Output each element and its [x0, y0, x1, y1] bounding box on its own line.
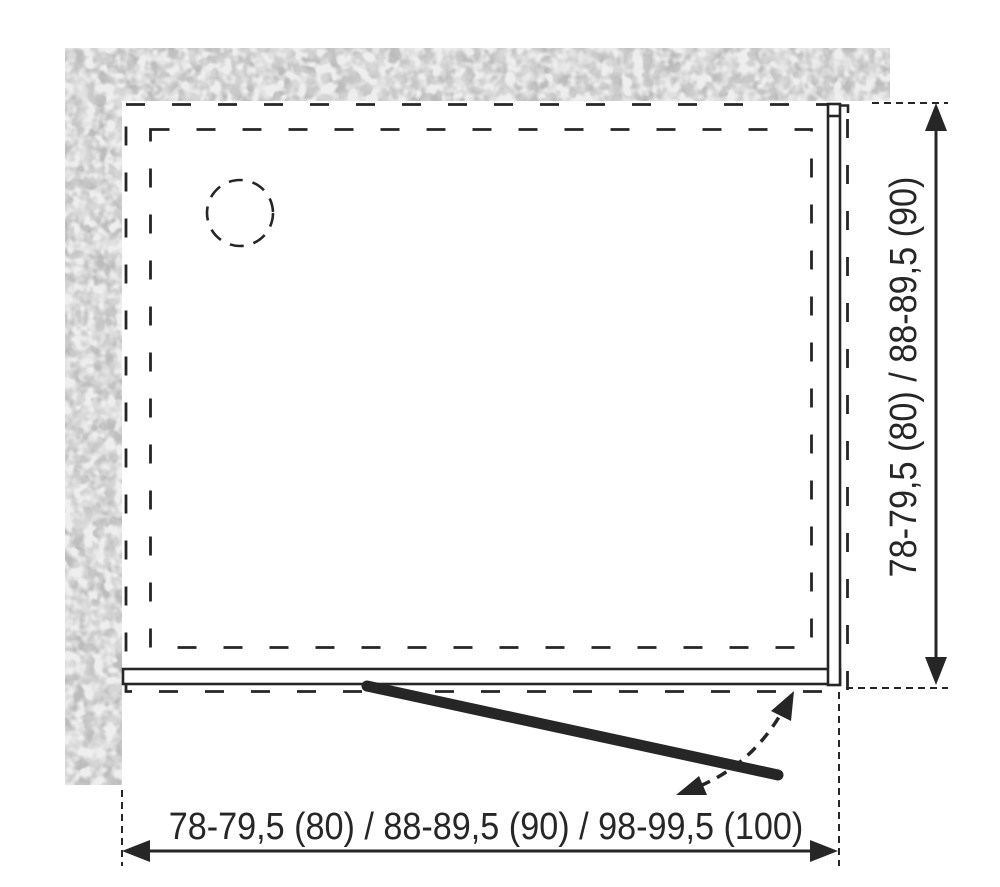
door-open-position: [367, 686, 778, 775]
drain-circle: [207, 180, 273, 246]
width-dimension-label: 78-79,5 (80) / 88-89,5 (90) / 98-99,5 (1…: [169, 804, 804, 847]
fixed-panel: [828, 104, 848, 685]
shower-tray-outline: [126, 105, 848, 692]
door-swing-arrow-down-icon: [676, 776, 707, 795]
width-arrow-left-icon: [122, 840, 150, 862]
shower-enclosure-plan: 78-79,5 (80) / 88-89,5 (90) 78-79,5 (80)…: [0, 0, 1000, 887]
height-dimension: 78-79,5 (80) / 88-89,5 (90): [846, 103, 948, 688]
fixed-panel-profile: [828, 104, 840, 685]
width-arrow-right-icon: [810, 840, 838, 862]
height-dimension-label: 78-79,5 (80) / 88-89,5 (90): [881, 177, 924, 578]
threshold-track-profile: [123, 669, 840, 684]
width-dimension: 78-79,5 (80) / 88-89,5 (90) / 98-99,5 (1…: [122, 692, 839, 866]
shower-tray-inner-outline: [151, 130, 812, 648]
door-swing-arrow-up-icon: [771, 691, 794, 721]
height-arrow-top-icon: [925, 103, 947, 131]
height-arrow-bottom-icon: [925, 657, 947, 685]
